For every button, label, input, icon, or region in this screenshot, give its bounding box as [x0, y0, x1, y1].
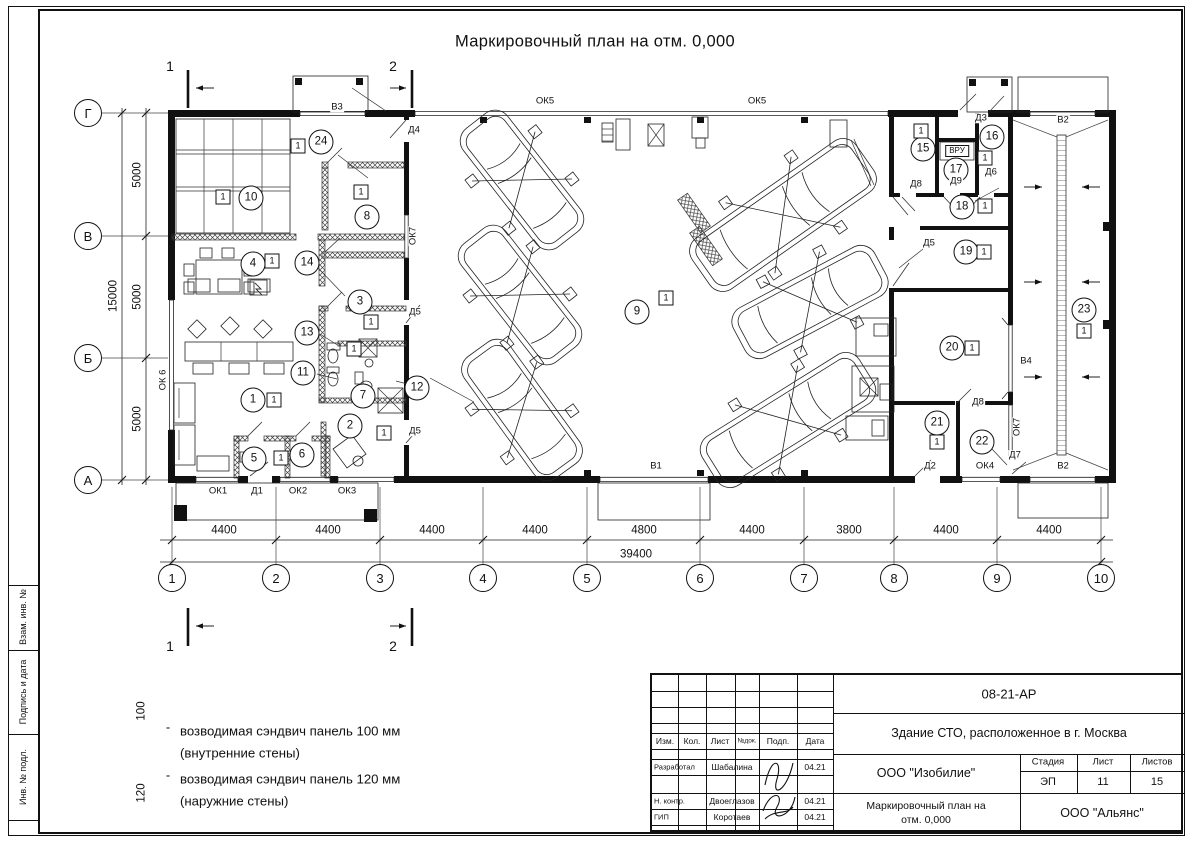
- stamp-stage-value: ЭП: [1040, 776, 1056, 788]
- legend-item-2-line-1: возводимая сэндвич панель 120 мм: [180, 772, 400, 787]
- car-on-lift-icon: [442, 323, 603, 497]
- margin-box-inv-podl: Инв. № подл.: [18, 749, 28, 805]
- stamp-project-title: Здание СТО, расположенное в г. Москва: [891, 726, 1127, 740]
- stamp-role-developer: Разработал: [654, 763, 695, 772]
- stamp-col-kol: Кол.: [684, 736, 701, 746]
- stamp-stage-label: Стадия: [1032, 757, 1064, 768]
- drawing-sheet: 1234567891044004400440044004800440038004…: [0, 0, 1191, 842]
- stamp-drawing-name-1: Маркировочный план на: [866, 800, 985, 812]
- margin-box-podpis-data: Подпись и дата: [18, 660, 28, 725]
- stamp-drawing-name-2: отм. 0,000: [901, 814, 951, 826]
- stamp-name-gip: Коротаев: [714, 812, 751, 822]
- stamp-doc-number: 08-21-АР: [982, 687, 1037, 702]
- stamp-col-ndok: №док.: [737, 738, 756, 745]
- stamp-col-list: Лист: [711, 736, 729, 746]
- stamp-date-developer: 04.21: [804, 762, 825, 772]
- legend-dash: -: [166, 720, 170, 735]
- car-on-lift-icon: [440, 93, 603, 267]
- stamp-name-developer: Шабалина: [711, 762, 752, 772]
- stamp-role-ncontrol: Н. контр.: [654, 797, 685, 806]
- stamp-role-gip: ГИП: [654, 813, 669, 822]
- legend-thickness-120: 120: [136, 783, 148, 802]
- stamp-name-ncontrol: Двоеглазов: [709, 796, 754, 806]
- legend-item-2-line-2: (наружние стены): [180, 794, 288, 809]
- stamp-col-izm: Изм.: [656, 736, 674, 746]
- title-block: Изм. Кол. Лист №док. Подп. Дата Разработ…: [650, 673, 1183, 832]
- stamp-date-gip: 04.21: [804, 812, 825, 822]
- page-title: Маркировочный план на отм. 0,000: [455, 33, 735, 52]
- car-on-lift-icon: [674, 118, 893, 311]
- stamp-company: ООО "Изобилие": [877, 766, 975, 780]
- legend-item-1-line-1: возводимая сэндвич панель 100 мм: [180, 724, 400, 739]
- margin-box-vzam-inv: Взам. инв. №: [18, 589, 28, 645]
- legend-dash: -: [166, 768, 170, 783]
- legend-thickness-100: 100: [136, 701, 148, 720]
- stamp-sheets-label: Листов: [1142, 757, 1173, 768]
- stamp-date-ncontrol: 04.21: [804, 796, 825, 806]
- stamp-contractor: ООО "Альянс": [1060, 806, 1144, 820]
- car-on-lift-icon: [438, 208, 601, 382]
- stamp-sheet-value: 11: [1097, 776, 1108, 788]
- legend-item-1-line-2: (внутренние стены): [180, 746, 300, 761]
- stamp-sheet-label: Лист: [1093, 757, 1114, 768]
- stamp-col-data: Дата: [806, 736, 825, 746]
- stamp-col-podp: Подп.: [767, 736, 790, 746]
- signature: [759, 749, 799, 831]
- stamp-sheets-value: 15: [1151, 776, 1163, 788]
